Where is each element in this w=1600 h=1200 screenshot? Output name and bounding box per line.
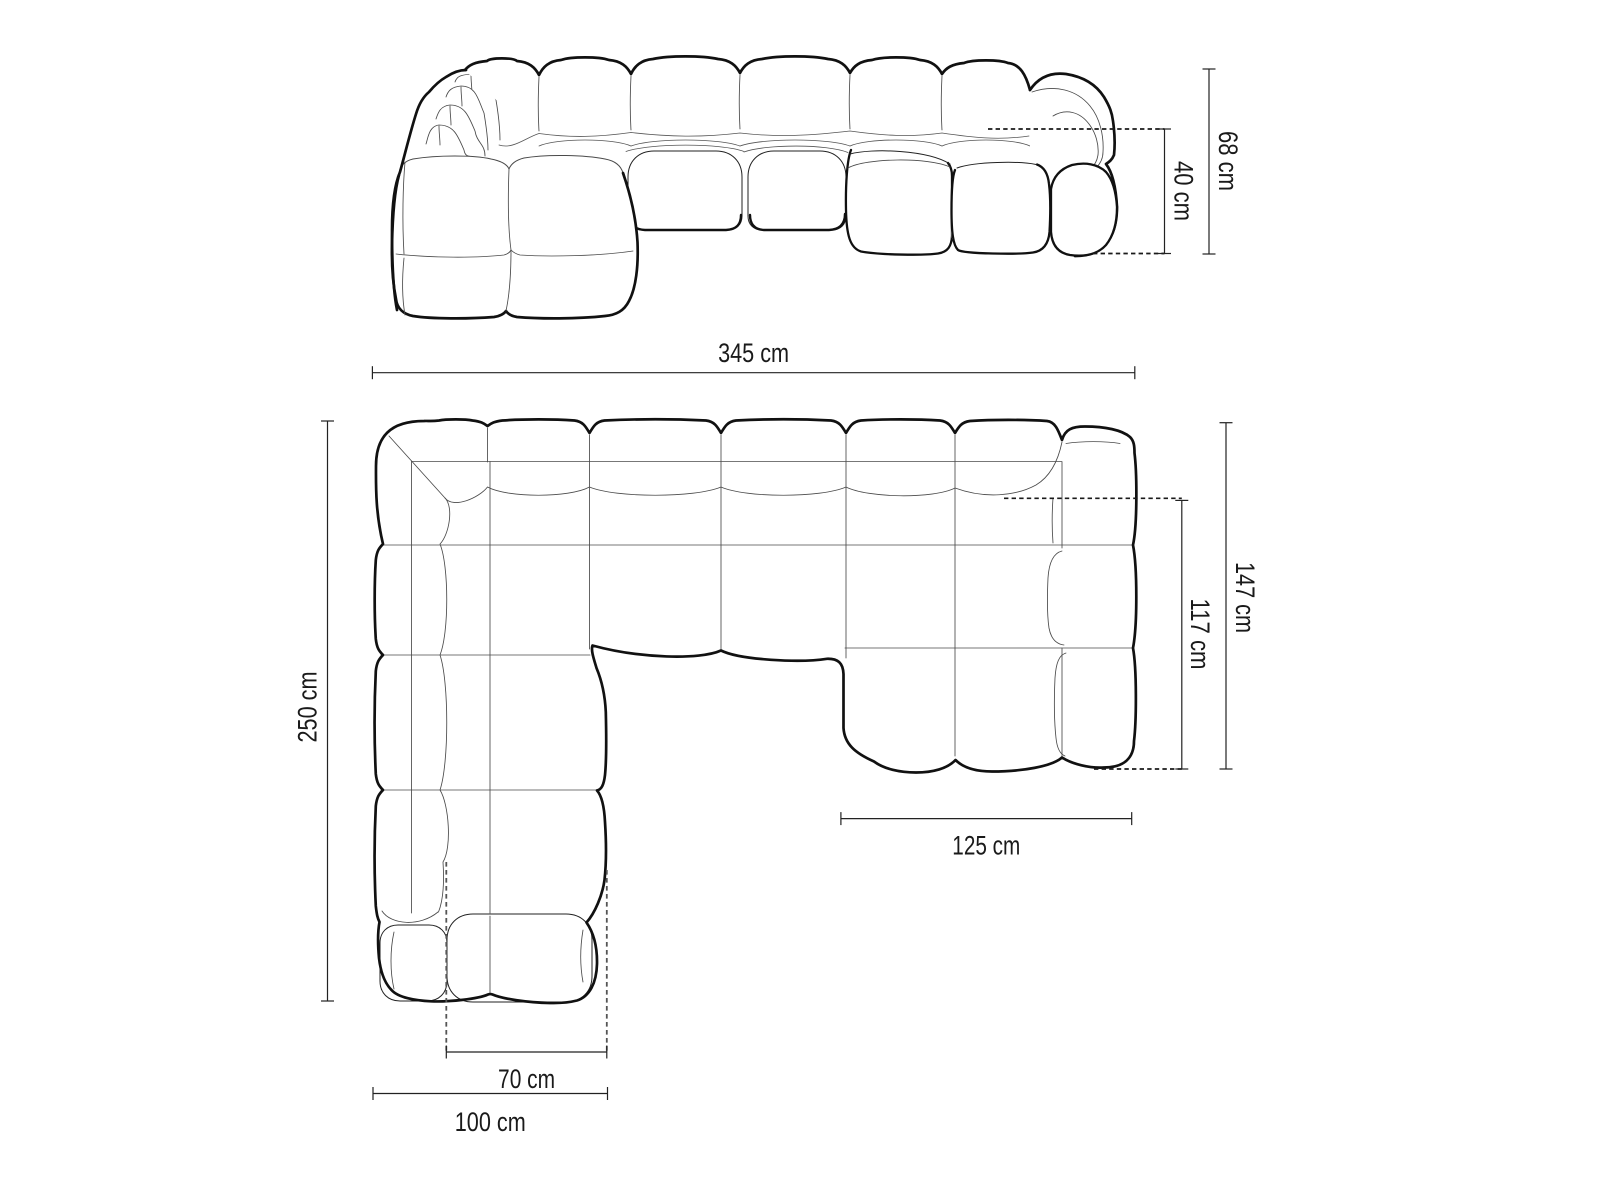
svg-text:250 cm: 250 cm: [292, 672, 322, 743]
svg-text:100 cm: 100 cm: [455, 1107, 526, 1137]
svg-text:147 cm: 147 cm: [1230, 562, 1260, 633]
svg-text:345 cm: 345 cm: [718, 338, 789, 368]
svg-text:40 cm: 40 cm: [1169, 161, 1199, 221]
svg-text:68 cm: 68 cm: [1213, 131, 1243, 191]
svg-text:70 cm: 70 cm: [498, 1064, 555, 1094]
svg-text:117 cm: 117 cm: [1185, 599, 1215, 670]
svg-text:125 cm: 125 cm: [952, 830, 1020, 860]
